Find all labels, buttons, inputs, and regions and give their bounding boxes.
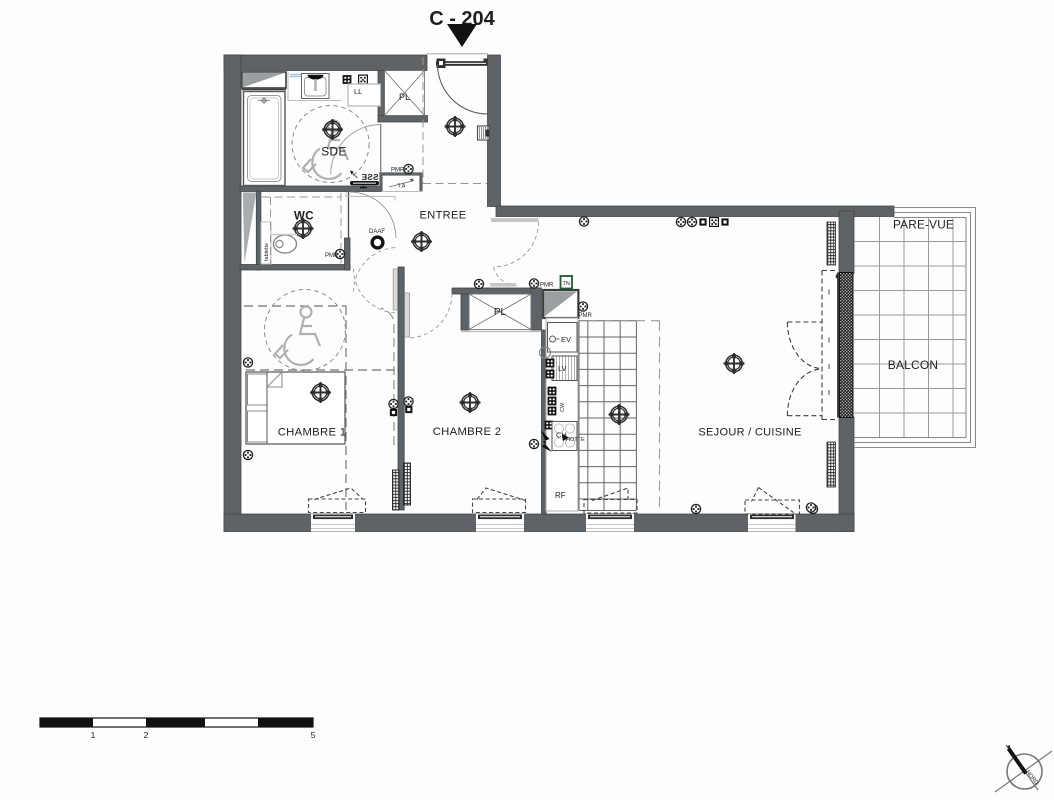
svg-text:CHAMBRE 1: CHAMBRE 1 (278, 427, 347, 439)
svg-text:HOTTE: HOTTE (566, 437, 585, 443)
svg-text:PARE-VUE: PARE-VUE (893, 218, 954, 232)
svg-text:PL: PL (494, 307, 507, 318)
svg-text:EV: EV (561, 335, 571, 344)
svg-text:2: 2 (144, 730, 149, 740)
svg-text:SDE: SDE (321, 145, 346, 159)
svg-text:CHAMBRE 2: CHAMBRE 2 (433, 426, 502, 438)
svg-text:SEJOUR / CUISINE: SEJOUR / CUISINE (698, 427, 801, 439)
svg-text:PL: PL (399, 92, 410, 102)
svg-text:5: 5 (311, 730, 316, 740)
svg-text:tablette: tablette (264, 243, 270, 261)
svg-text:LV: LV (558, 364, 567, 373)
svg-text:SSE: SSE (361, 173, 379, 182)
svg-text:PMR: PMR (540, 283, 554, 289)
svg-text:ENTREE: ENTREE (419, 210, 466, 222)
svg-text:PMR: PMR (325, 253, 339, 259)
svg-text:1: 1 (91, 730, 96, 740)
svg-text:LL: LL (354, 87, 362, 96)
svg-text:RF: RF (555, 491, 566, 500)
svg-text:DAAF: DAAF (369, 229, 385, 235)
svg-text:PMR: PMR (391, 168, 405, 174)
svg-text:CW: CW (560, 402, 566, 412)
svg-text:PMR: PMR (579, 313, 593, 319)
svg-text:BALCON: BALCON (888, 358, 939, 372)
svg-text:T.A: T.A (398, 184, 406, 190)
svg-text:TN: TN (563, 281, 570, 287)
